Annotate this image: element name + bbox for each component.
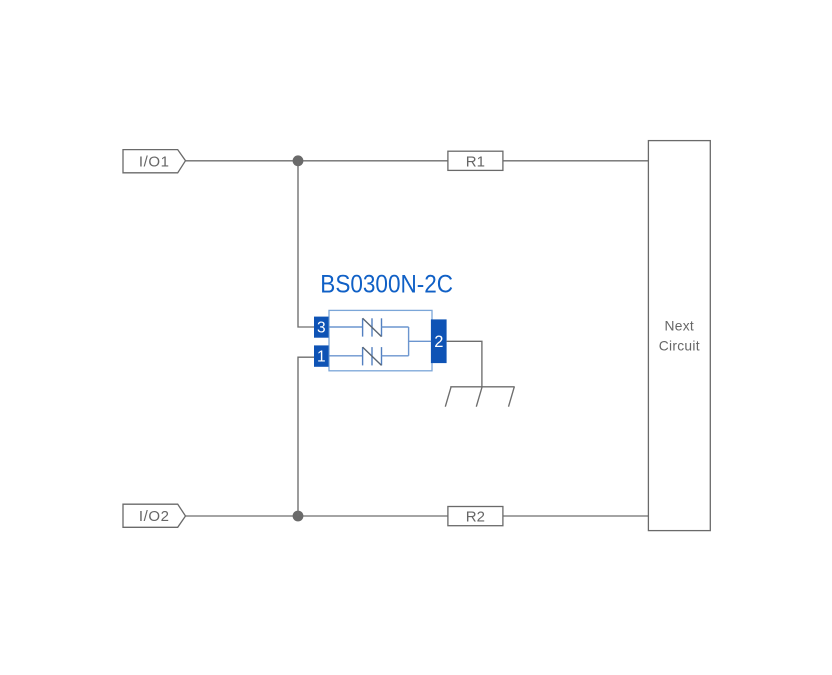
svg-text:Next: Next (665, 319, 695, 334)
svg-text:2: 2 (434, 333, 443, 351)
svg-text:1: 1 (317, 349, 326, 366)
svg-text:BS0300N-2C: BS0300N-2C (320, 271, 453, 299)
svg-text:3: 3 (317, 320, 326, 337)
svg-text:I/O2: I/O2 (139, 508, 170, 525)
svg-text:I/O1: I/O1 (139, 154, 170, 171)
svg-text:R2: R2 (466, 509, 485, 526)
svg-text:R1: R1 (466, 153, 485, 170)
svg-text:Circuit: Circuit (659, 339, 700, 354)
